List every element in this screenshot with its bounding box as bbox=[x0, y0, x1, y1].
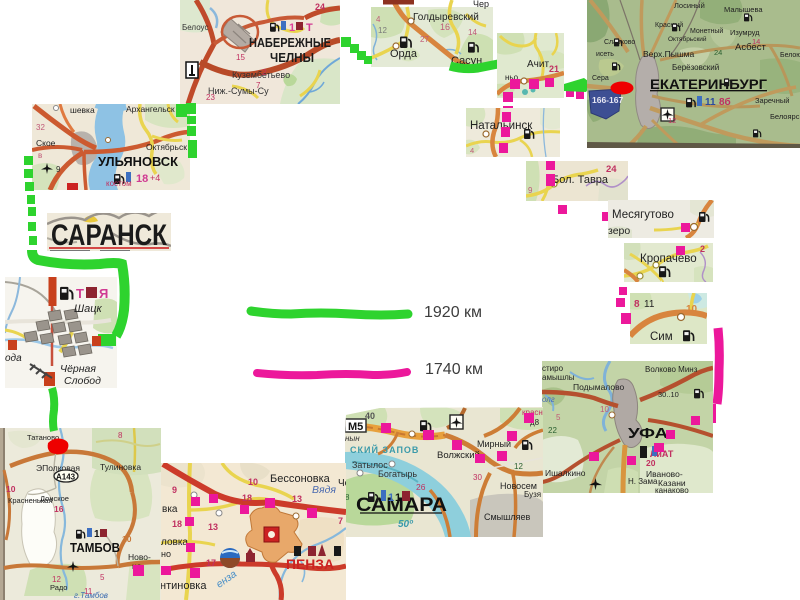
svg-text:9: 9 bbox=[528, 186, 533, 195]
svg-text:Вядя: Вядя bbox=[312, 484, 336, 496]
svg-text:ЕКАТЕРИНБУРГ: ЕКАТЕРИНБУРГ bbox=[650, 77, 767, 92]
svg-text:Волково Минз: Волково Минз bbox=[645, 365, 698, 374]
svg-text:1: 1 bbox=[289, 22, 295, 34]
svg-text:16: 16 bbox=[54, 504, 64, 514]
svg-text:13: 13 bbox=[208, 522, 218, 532]
svg-text:УФА: УФА bbox=[628, 425, 668, 442]
svg-text:8: 8 bbox=[634, 299, 640, 310]
svg-text:САРАНСК: САРАНСК bbox=[51, 219, 168, 252]
svg-text:Т: Т bbox=[76, 286, 84, 301]
svg-text:18: 18 bbox=[242, 493, 252, 503]
svg-text:24: 24 bbox=[606, 164, 617, 175]
svg-text:Т: Т bbox=[306, 22, 313, 34]
svg-text:Сим: Сим bbox=[650, 331, 673, 343]
svg-text:Октябрьск: Октябрьск bbox=[146, 142, 187, 152]
svg-text:17: 17 bbox=[206, 558, 216, 568]
svg-text:Орда: Орда bbox=[390, 48, 418, 60]
svg-text:1: 1 bbox=[94, 529, 100, 540]
svg-text:50º: 50º bbox=[398, 519, 414, 530]
svg-text:15: 15 bbox=[236, 53, 245, 62]
svg-text:1: 1 bbox=[395, 492, 401, 504]
svg-text:1740 км: 1740 км bbox=[425, 361, 483, 378]
svg-text:УЛЬЯНОВСК: УЛЬЯНОВСК bbox=[98, 154, 178, 169]
svg-text:32: 32 bbox=[36, 123, 45, 132]
svg-text:13: 13 bbox=[292, 494, 302, 504]
svg-text:5: 5 bbox=[100, 573, 105, 582]
svg-text:Ишалкино: Ишалкино bbox=[545, 468, 586, 478]
svg-text:Кропачево: Кропачево bbox=[640, 253, 697, 265]
svg-text:30..10: 30..10 bbox=[658, 390, 679, 399]
svg-text:ЧЕЛНЫ: ЧЕЛНЫ bbox=[270, 50, 314, 65]
svg-text:10: 10 bbox=[248, 477, 258, 487]
svg-text:Асбест: Асбест bbox=[735, 42, 766, 53]
svg-text:Малышева: Малышева bbox=[724, 5, 763, 14]
svg-text:Месягутово: Месягутово bbox=[612, 209, 674, 221]
svg-text:26: 26 bbox=[416, 482, 426, 492]
svg-text:Я: Я bbox=[99, 286, 108, 301]
svg-text:исеть: исеть bbox=[596, 51, 614, 58]
svg-text:Ское: Ское bbox=[36, 138, 56, 148]
svg-text:10: 10 bbox=[686, 304, 698, 315]
svg-text:22: 22 bbox=[548, 426, 557, 435]
svg-text:Радо: Радо bbox=[50, 583, 67, 592]
svg-text:7: 7 bbox=[338, 516, 343, 526]
svg-text:Архангельск: Архангельск bbox=[126, 104, 175, 114]
svg-text:Тулиновка: Тулиновка bbox=[100, 462, 141, 472]
svg-text:Бузя: Бузя bbox=[524, 490, 541, 499]
svg-text:18: 18 bbox=[136, 173, 148, 185]
svg-text:костом: костом bbox=[106, 179, 132, 188]
svg-text:Богатырь: Богатырь bbox=[378, 469, 417, 479]
svg-text:Лосиный: Лосиный bbox=[674, 1, 705, 10]
svg-text:олг: олг bbox=[542, 395, 555, 404]
svg-text:шевка: шевка bbox=[70, 105, 95, 115]
svg-text:14: 14 bbox=[468, 28, 477, 37]
svg-text:10: 10 bbox=[122, 534, 132, 544]
svg-text:9: 9 bbox=[172, 485, 177, 495]
svg-text:вка: вка bbox=[162, 504, 178, 515]
svg-text:Красный: Красный bbox=[655, 21, 683, 29]
svg-text:СКИЙ ЗАПОВ: СКИЙ ЗАПОВ bbox=[350, 444, 419, 455]
svg-text:Н. Зама: Н. Зама bbox=[628, 477, 658, 486]
svg-text:амышлы: амышлы bbox=[542, 373, 575, 382]
svg-text:24: 24 bbox=[714, 48, 722, 57]
svg-text:Чер: Чер bbox=[473, 0, 489, 9]
svg-text:16: 16 bbox=[440, 22, 450, 32]
svg-text:2: 2 bbox=[700, 244, 705, 254]
svg-text:20: 20 bbox=[646, 458, 656, 468]
svg-text:зеро: зеро bbox=[608, 225, 630, 237]
svg-text:12: 12 bbox=[52, 575, 61, 584]
svg-text:Подымалово: Подымалово bbox=[573, 382, 624, 392]
svg-text:11: 11 bbox=[705, 97, 716, 108]
svg-text:40: 40 bbox=[365, 411, 375, 421]
svg-text:ловка: ловка bbox=[161, 537, 188, 548]
svg-text:8: 8 bbox=[118, 431, 123, 440]
svg-text:4: 4 bbox=[470, 146, 474, 155]
svg-text:М5: М5 bbox=[348, 421, 363, 433]
svg-text:нын: нын bbox=[345, 434, 360, 443]
svg-text:27: 27 bbox=[420, 35, 429, 44]
svg-text:Шацк: Шацк bbox=[74, 303, 103, 315]
svg-text:10: 10 bbox=[6, 484, 16, 494]
svg-text:9: 9 bbox=[56, 165, 61, 174]
svg-text:Заречный: Заречный bbox=[755, 96, 789, 105]
svg-text:10: 10 bbox=[600, 405, 609, 414]
svg-text:в: в bbox=[38, 151, 42, 160]
svg-text:Сера: Сера bbox=[592, 75, 609, 82]
svg-text:18: 18 bbox=[172, 519, 182, 529]
svg-text:стиро: стиро bbox=[542, 364, 564, 373]
svg-text:Белоюж: Белоюж bbox=[780, 52, 800, 59]
svg-text:но: но bbox=[161, 549, 171, 559]
svg-text:11: 11 bbox=[644, 299, 655, 310]
svg-text:30: 30 bbox=[473, 473, 482, 482]
svg-text:21: 21 bbox=[549, 64, 559, 74]
svg-text:Изумруд: Изумруд bbox=[730, 28, 760, 37]
svg-text:11: 11 bbox=[84, 587, 93, 596]
svg-text:Белоус: Белоус bbox=[182, 23, 208, 32]
svg-text:12: 12 bbox=[378, 26, 387, 35]
svg-text:Мирный: Мирный bbox=[477, 439, 511, 449]
svg-text:Берёзовский: Берёзовский bbox=[672, 63, 719, 72]
svg-text:8б: 8б bbox=[719, 96, 731, 108]
svg-text:4: 4 bbox=[376, 15, 381, 24]
svg-text:А143: А143 bbox=[56, 473, 76, 482]
svg-text:Смышляев: Смышляев bbox=[484, 512, 531, 522]
svg-text:7: 7 bbox=[256, 81, 261, 90]
svg-text:23: 23 bbox=[206, 93, 215, 102]
svg-text:1: 1 bbox=[388, 492, 394, 504]
svg-text:12: 12 bbox=[668, 116, 676, 125]
svg-text:ТАМБОВ: ТАМБОВ bbox=[70, 541, 120, 555]
svg-text:НАБЕРЕЖНЫЕ: НАБЕРЕЖНЫЕ bbox=[249, 35, 331, 50]
svg-text:нтиновка: нтиновка bbox=[160, 580, 207, 592]
svg-text:5: 5 bbox=[556, 413, 561, 422]
svg-text:14: 14 bbox=[752, 37, 760, 46]
svg-text:Слобод: Слобод bbox=[64, 375, 101, 387]
svg-text:Ачит: Ачит bbox=[527, 59, 549, 70]
svg-text:Донское: Донское bbox=[40, 494, 69, 503]
svg-text:Монетный: Монетный bbox=[690, 27, 723, 35]
svg-text:2: 2 bbox=[262, 68, 267, 77]
svg-text:ПЕНЗА: ПЕНЗА bbox=[286, 556, 334, 572]
svg-text:166-167: 166-167 bbox=[592, 95, 623, 105]
svg-text:Чёрная: Чёрная bbox=[60, 363, 96, 375]
svg-text:1920 км: 1920 км bbox=[424, 304, 482, 321]
svg-text:+4: +4 bbox=[150, 173, 160, 183]
svg-text:24: 24 bbox=[315, 2, 325, 12]
svg-text:12: 12 bbox=[514, 462, 523, 471]
svg-text:Верх.Пышма: Верх.Пышма bbox=[643, 49, 695, 59]
svg-text:Бол. Тавра: Бол. Тавра bbox=[552, 174, 609, 186]
svg-text:Октябрьский: Октябрьский bbox=[668, 35, 707, 43]
svg-text:Белоярск: Белоярск bbox=[770, 112, 800, 121]
svg-text:Волжский: Волжский bbox=[437, 450, 480, 461]
svg-text:ода: ода bbox=[5, 353, 22, 364]
